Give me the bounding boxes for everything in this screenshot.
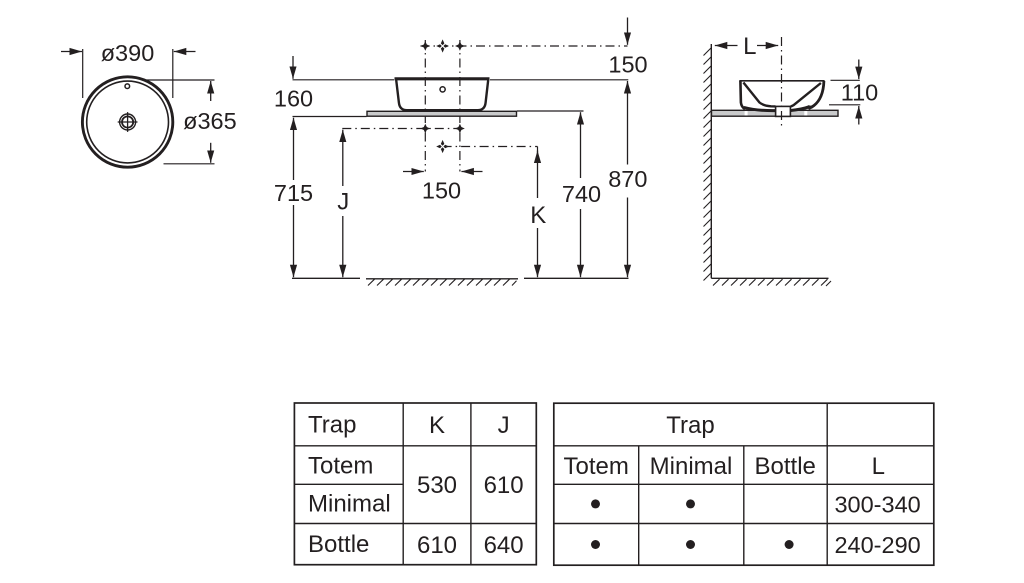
svg-text:300-340: 300-340 xyxy=(834,491,920,517)
svg-text:Bottle: Bottle xyxy=(755,453,816,480)
svg-text:150: 150 xyxy=(608,51,647,77)
svg-text:J: J xyxy=(337,189,349,216)
svg-text:K: K xyxy=(429,412,445,439)
svg-text:ø390: ø390 xyxy=(101,40,155,66)
svg-text:110: 110 xyxy=(841,80,878,106)
svg-text:Trap: Trap xyxy=(666,412,714,439)
svg-text:L: L xyxy=(872,453,885,480)
svg-text:Totem: Totem xyxy=(564,453,629,480)
svg-text:Minimal: Minimal xyxy=(308,491,391,518)
svg-text:Bottle: Bottle xyxy=(308,531,369,558)
svg-text:610: 610 xyxy=(484,472,524,499)
svg-text:240-290: 240-290 xyxy=(834,532,920,558)
svg-text:740: 740 xyxy=(562,181,601,207)
svg-text:160: 160 xyxy=(274,86,313,112)
svg-text:L: L xyxy=(743,33,756,60)
svg-text:Minimal: Minimal xyxy=(650,453,733,480)
svg-text:K: K xyxy=(530,202,546,229)
svg-text:Trap: Trap xyxy=(308,412,356,439)
svg-text:610: 610 xyxy=(417,532,457,559)
svg-text:640: 640 xyxy=(484,532,524,559)
svg-text:Totem: Totem xyxy=(308,453,373,480)
svg-text:870: 870 xyxy=(608,166,647,192)
svg-text:ø365: ø365 xyxy=(183,108,237,134)
svg-text:715: 715 xyxy=(274,180,313,206)
svg-text:150: 150 xyxy=(422,177,461,203)
svg-text:530: 530 xyxy=(417,472,457,499)
svg-text:J: J xyxy=(498,412,510,439)
